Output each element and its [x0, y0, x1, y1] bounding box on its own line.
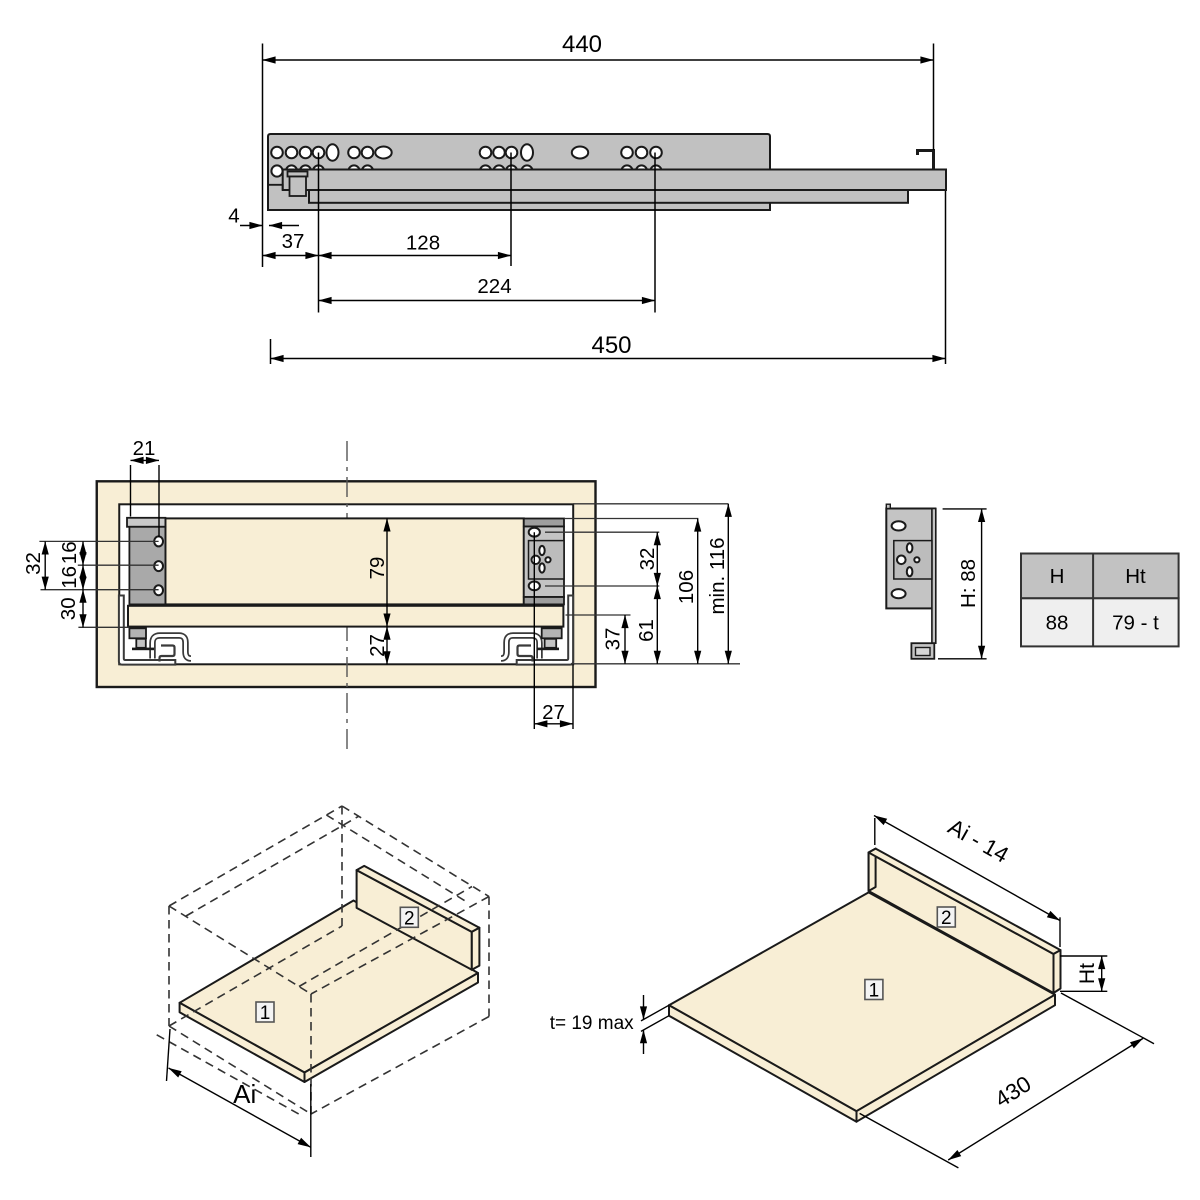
- svg-text:Ht: Ht: [1125, 565, 1146, 588]
- svg-text:4: 4: [228, 205, 239, 228]
- svg-text:224: 224: [477, 275, 511, 298]
- svg-text:min. 116: min. 116: [706, 537, 729, 614]
- svg-text:30: 30: [57, 597, 80, 620]
- svg-text:H: 88: H: 88: [957, 559, 980, 608]
- svg-text:21: 21: [133, 437, 156, 460]
- svg-text:t= 19 max: t= 19 max: [550, 1013, 634, 1034]
- svg-text:79: 79: [366, 557, 389, 580]
- svg-text:440: 440: [562, 31, 602, 58]
- svg-text:32: 32: [22, 552, 45, 575]
- svg-text:61: 61: [635, 619, 658, 642]
- svg-text:2: 2: [941, 908, 952, 929]
- svg-text:Ht: Ht: [1076, 963, 1099, 984]
- svg-text:16: 16: [58, 566, 81, 589]
- svg-text:1: 1: [869, 981, 880, 1002]
- svg-text:H: H: [1050, 565, 1065, 588]
- svg-text:37: 37: [602, 628, 625, 651]
- svg-text:27: 27: [366, 634, 389, 657]
- svg-text:450: 450: [591, 332, 631, 359]
- svg-text:79 - t: 79 - t: [1112, 612, 1159, 635]
- svg-text:27: 27: [542, 701, 565, 724]
- svg-text:128: 128: [406, 232, 440, 255]
- svg-text:Ai: Ai: [233, 1079, 256, 1109]
- svg-text:37: 37: [282, 230, 305, 253]
- svg-text:106: 106: [675, 570, 698, 604]
- svg-text:16: 16: [58, 541, 81, 564]
- svg-text:32: 32: [636, 548, 659, 571]
- svg-text:2: 2: [404, 908, 415, 929]
- svg-text:1: 1: [260, 1003, 271, 1024]
- svg-text:88: 88: [1046, 612, 1069, 635]
